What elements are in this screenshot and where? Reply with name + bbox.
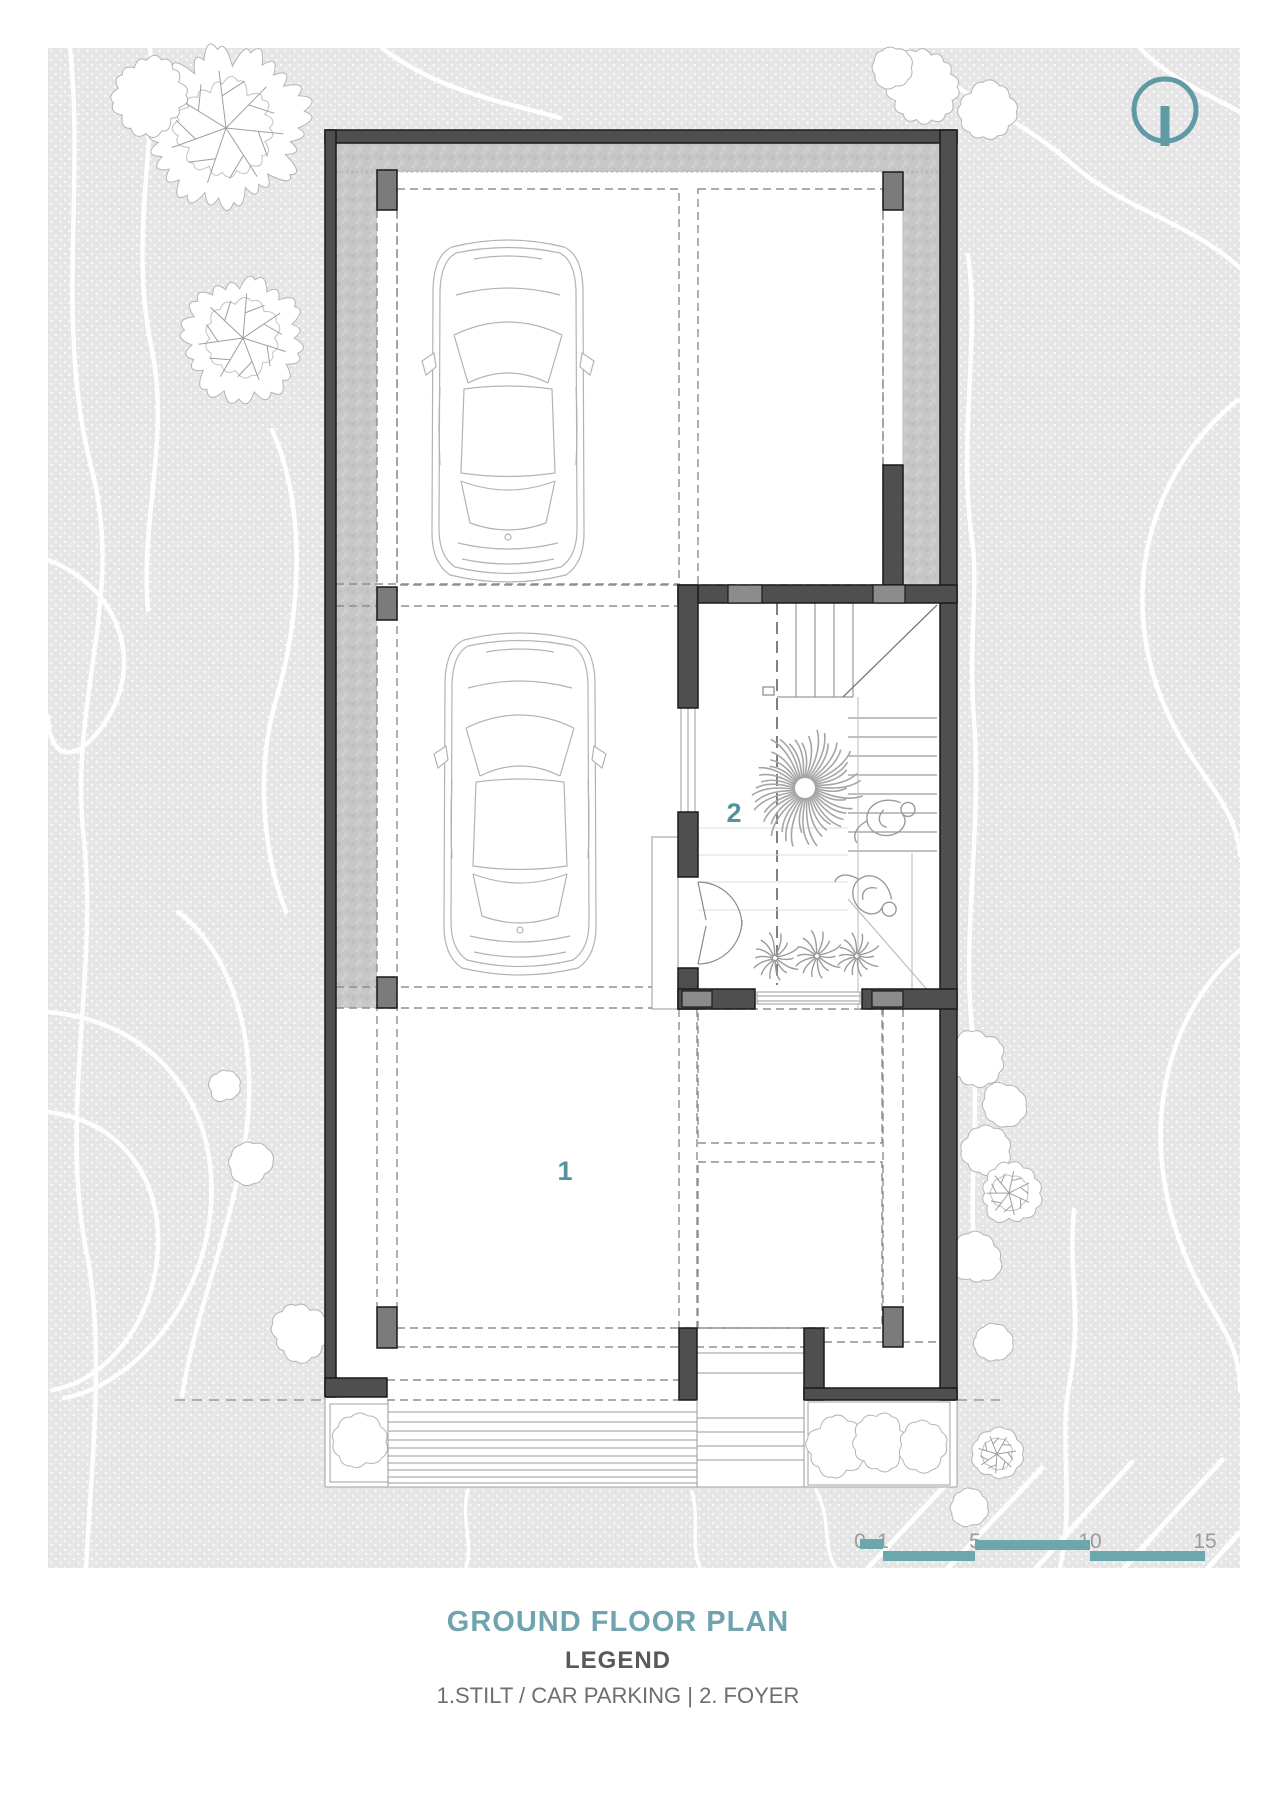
entry-screen-wall (652, 837, 678, 1009)
column (377, 170, 397, 210)
driveway-apron-right (903, 172, 940, 585)
column (883, 172, 903, 210)
column (883, 1307, 903, 1347)
room-label-2: 2 (726, 798, 741, 828)
scale-tick-label: 15 (1193, 1530, 1216, 1553)
driveway-apron-top (336, 143, 940, 172)
tree (972, 1427, 1024, 1479)
driveway-apron-left (336, 172, 377, 1008)
title-block: GROUND FLOOR PLAN LEGEND 1.STILT / CAR P… (437, 1606, 800, 1708)
column (377, 1307, 397, 1348)
wall-right (940, 130, 957, 1400)
room-label-1: 1 (557, 1156, 572, 1186)
building-floor (325, 143, 957, 1487)
legend-items: 1.STILT / CAR PARKING | 2. FOYER (437, 1683, 800, 1708)
column (377, 587, 397, 620)
page-title: GROUND FLOOR PLAN (447, 1606, 789, 1638)
legend-heading: LEGEND (565, 1647, 671, 1674)
tree (872, 47, 912, 89)
tree (209, 1070, 241, 1101)
wall-top (325, 130, 957, 143)
wall-left (325, 130, 336, 1397)
column (377, 977, 397, 1008)
entry-threshold-step (757, 992, 860, 1004)
car-top-view-1 (422, 240, 594, 582)
ground-floor-plan-canvas: 1 2 0 1 5 10 15 GROUND FLOOR PLAN LEGEND… (0, 0, 1280, 1810)
car-top-view-2 (434, 633, 606, 975)
floor-plan-sheet: 1 2 0 1 5 10 15 GROUND FLOOR PLAN LEGEND… (0, 0, 1280, 1810)
foyer-top-wall (678, 585, 957, 603)
wall-bottom-left (325, 1378, 387, 1397)
